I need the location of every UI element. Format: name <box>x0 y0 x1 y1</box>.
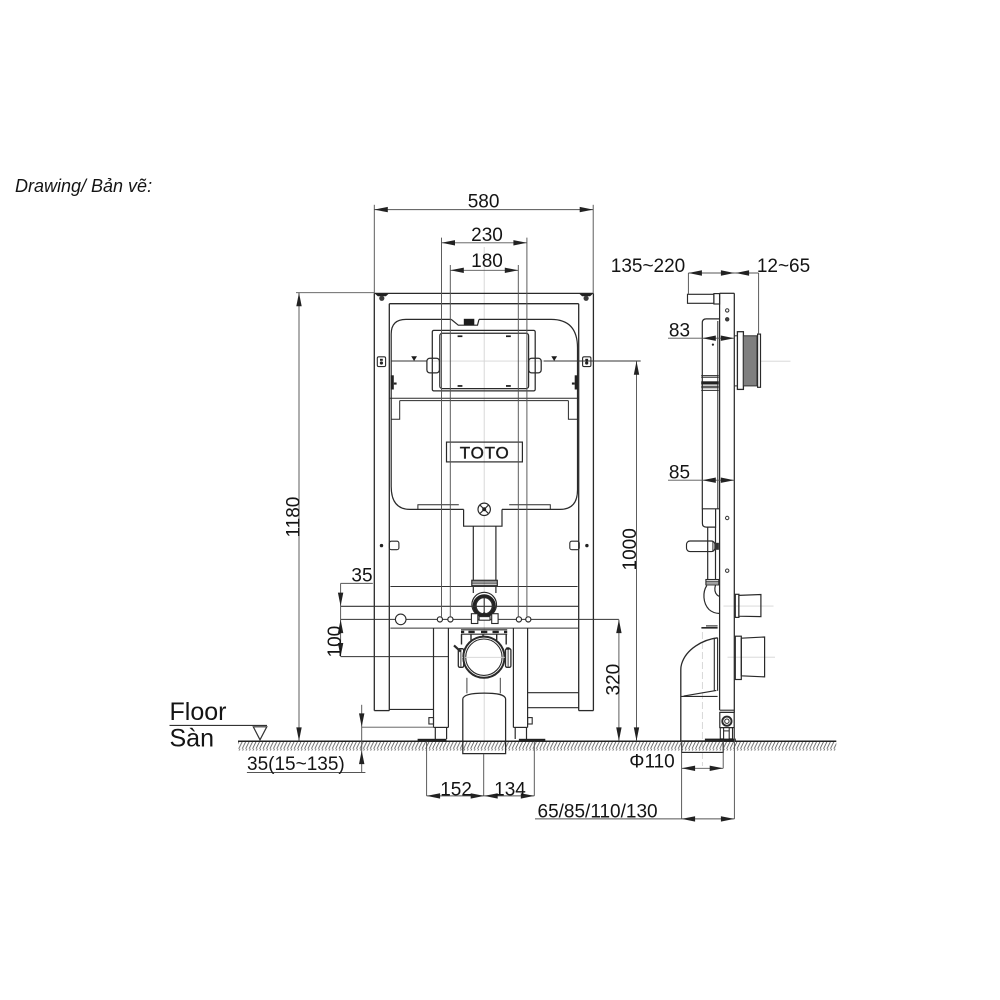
svg-text:35: 35 <box>351 566 372 587</box>
svg-text:580: 580 <box>468 191 500 212</box>
svg-text:85: 85 <box>669 463 690 484</box>
svg-text:Φ110: Φ110 <box>629 751 674 772</box>
svg-text:152: 152 <box>440 779 472 800</box>
svg-text:12~65: 12~65 <box>757 256 810 277</box>
svg-text:1180: 1180 <box>283 497 304 538</box>
svg-text:230: 230 <box>471 225 503 246</box>
svg-text:134: 134 <box>494 779 526 800</box>
svg-text:180: 180 <box>471 251 503 272</box>
svg-text:35(15~135): 35(15~135) <box>247 754 345 775</box>
svg-text:Sàn: Sàn <box>170 724 214 752</box>
svg-text:65/85/110/130: 65/85/110/130 <box>538 801 658 822</box>
svg-text:320: 320 <box>604 664 625 696</box>
svg-text:Drawing/ Bản vẽ:: Drawing/ Bản vẽ: <box>15 176 152 196</box>
svg-text:Floor: Floor <box>170 698 227 726</box>
svg-text:1000: 1000 <box>620 528 641 570</box>
svg-text:135~220: 135~220 <box>611 256 686 277</box>
svg-text:TOTO: TOTO <box>460 443 510 462</box>
svg-text:100: 100 <box>325 626 346 658</box>
svg-text:83: 83 <box>669 321 690 342</box>
